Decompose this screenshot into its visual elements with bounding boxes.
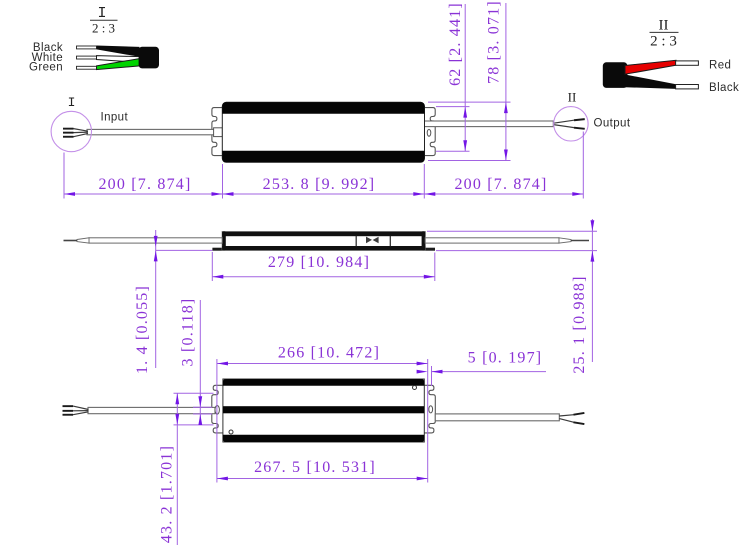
svg-text:II: II [659,17,669,33]
svg-text:2 : 3: 2 : 3 [92,20,115,35]
svg-text:43. 2 [1.701]: 43. 2 [1.701] [159,445,176,543]
svg-text:I: I [68,95,76,110]
svg-text:200 [7. 874]: 200 [7. 874] [98,176,191,193]
svg-text:62 [2. 441]: 62 [2. 441] [447,2,464,86]
svg-text:78 [3. 071]: 78 [3. 071] [486,0,503,84]
svg-text:Black: Black [709,82,739,94]
svg-text:1. 4 [0.055]: 1. 4 [0.055] [134,285,151,374]
svg-text:Input: Input [101,112,129,124]
svg-text:200 [7. 874]: 200 [7. 874] [454,176,547,193]
svg-text:267. 5 [10. 531]: 267. 5 [10. 531] [254,459,376,476]
svg-text:266 [10. 472]: 266 [10. 472] [278,345,380,362]
svg-text:3 [0.118]: 3 [0.118] [180,298,197,367]
svg-text:253. 8 [9. 992]: 253. 8 [9. 992] [263,176,376,193]
svg-text:Green: Green [29,61,63,73]
svg-text:Red: Red [709,60,731,72]
svg-text:Output: Output [594,118,631,130]
svg-text:2 : 3: 2 : 3 [650,34,677,50]
svg-text:279 [10. 984]: 279 [10. 984] [268,254,370,271]
svg-text:II: II [568,90,577,105]
svg-text:25. 1 [0.988]: 25. 1 [0.988] [571,275,588,373]
svg-text:5 [0. 197]: 5 [0. 197] [468,350,543,367]
